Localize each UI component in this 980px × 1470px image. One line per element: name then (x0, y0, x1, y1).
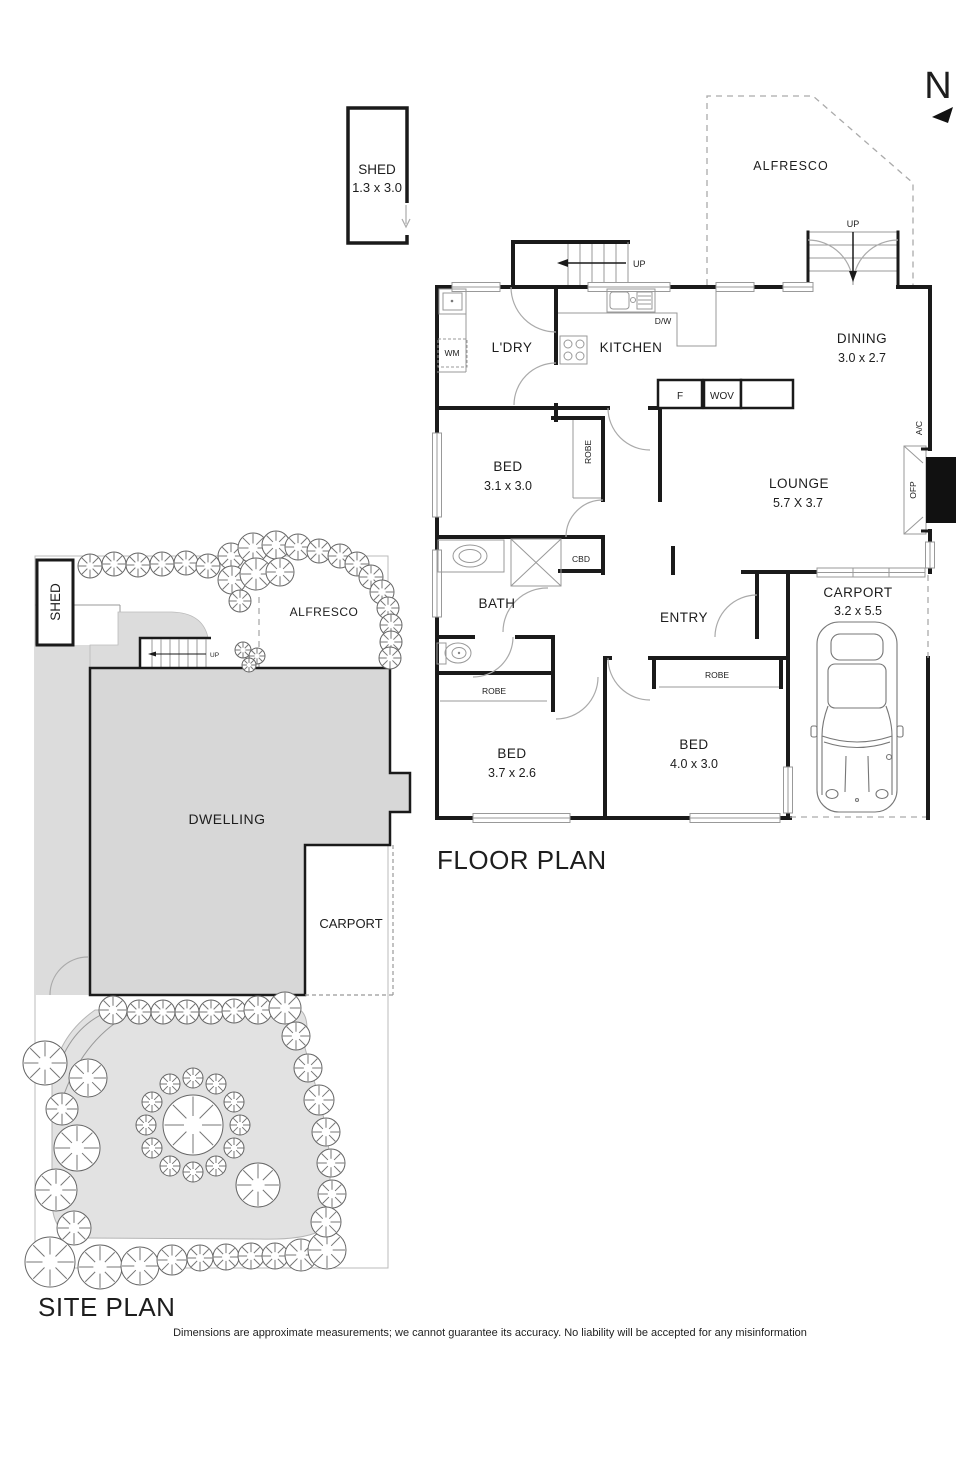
north-arrow-icon (932, 107, 953, 123)
room-label-lounge: LOUNGE (769, 476, 829, 491)
bench-box (741, 380, 793, 408)
shed-floorplan: SHED 1.3 x 3.0 (348, 108, 410, 243)
window-icon (588, 283, 670, 292)
tree-icon (222, 999, 246, 1023)
room-label-carport: CARPORT (823, 585, 892, 600)
tree-icon (23, 1041, 67, 1085)
room-label-bed3: BED (679, 737, 708, 752)
fridge-box: F (658, 380, 702, 408)
tree-icon (282, 1022, 310, 1050)
dwelling-label: DWELLING (188, 811, 265, 827)
tree-icon (238, 1243, 264, 1269)
tree-icon (35, 1169, 77, 1211)
robe-label: ROBE (482, 686, 506, 696)
north-compass: N (924, 65, 953, 123)
floor-plan-title: FLOOR PLAN (437, 845, 607, 875)
carport-siteplan: CARPORT (305, 845, 393, 995)
site-shed-label: SHED (48, 583, 63, 621)
vanity-basin-icon (438, 540, 504, 572)
window-icon (783, 283, 813, 292)
tree-icon (213, 1244, 239, 1270)
tree-icon (224, 1138, 244, 1158)
wall-oven-label: WOV (710, 391, 734, 402)
driveway-strip (35, 645, 90, 995)
window-icon (817, 568, 925, 577)
room-label-laundry: L'DRY (492, 340, 533, 355)
tree-icon (230, 1115, 250, 1135)
window-icon (433, 550, 442, 617)
room-label-bath: BATH (478, 596, 515, 611)
tree-icon (312, 1118, 340, 1146)
tree-icon (174, 551, 198, 575)
floor-plan: SHED 1.3 x 3.0 N ALFRESCO UP (348, 65, 956, 875)
tree-icon (224, 1092, 244, 1112)
robe-label: ROBE (583, 440, 593, 464)
room-dims-bed3: 4.0 x 3.0 (670, 757, 718, 771)
dwelling-block: DWELLING (90, 668, 410, 995)
plan-drawing: SHED 1.3 x 3.0 N ALFRESCO UP (0, 0, 980, 1470)
north-letter: N (924, 65, 951, 107)
tree-icon (69, 1059, 107, 1097)
site-stairs-up-label: UP (210, 652, 219, 659)
site-carport-label: CARPORT (319, 916, 382, 931)
site-plan: UP SHED ALFRESCO DWELLING CARPORT SITE P… (23, 531, 410, 1322)
stairs-up-label: UP (633, 259, 646, 269)
robe-label: ROBE (705, 670, 729, 680)
disclaimer-text: Dimensions are approximate measurements;… (173, 1327, 807, 1339)
alfresco-floorplan: ALFRESCO (707, 96, 913, 285)
tree-icon (157, 1245, 187, 1275)
dishwasher-label: D/W (655, 316, 672, 326)
tree-icon (151, 1000, 175, 1024)
tree-icon (102, 552, 126, 576)
room-label-dining: DINING (837, 331, 887, 346)
site-plan-title: SITE PLAN (38, 1292, 175, 1322)
plan-page: SHED 1.3 x 3.0 N ALFRESCO UP (0, 0, 980, 1470)
tree-icon (379, 647, 401, 669)
tree-icon (199, 1000, 223, 1024)
shed-siteplan: SHED (37, 560, 73, 645)
tree-icon (136, 1115, 156, 1135)
tree-icon (183, 1162, 203, 1182)
laundry-trough-icon (437, 289, 466, 372)
tree-icon (269, 992, 301, 1024)
tree-icon (262, 1243, 288, 1269)
robe-bed1: ROBE (573, 420, 601, 498)
fireplace-ofp: OFP (904, 446, 956, 534)
tree-icon (311, 1207, 341, 1237)
room-dims-bed1: 3.1 x 3.0 (484, 479, 532, 493)
stairs-floorplan: UP (513, 242, 646, 287)
tree-icon (121, 1247, 159, 1285)
tree-icon (206, 1156, 226, 1176)
tree-icon (160, 1074, 180, 1094)
tree-icon (99, 996, 127, 1024)
room-dims-bed2: 3.7 x 2.6 (488, 766, 536, 780)
wall-oven-box: WOV (704, 380, 741, 408)
tree-icon (294, 1054, 322, 1082)
tree-icon (285, 534, 311, 560)
room-label-bed2: BED (497, 746, 526, 761)
tree-icon (142, 1138, 162, 1158)
shed-dims: 1.3 x 3.0 (352, 180, 402, 195)
window-icon (784, 767, 793, 813)
kitchen-sink-icon (607, 289, 655, 312)
tree-icon (46, 1093, 78, 1125)
tree-icon (142, 1092, 162, 1112)
tree-icon (236, 1163, 280, 1207)
tree-icon (318, 1180, 346, 1208)
window-icon (473, 814, 570, 823)
window-icon (452, 283, 500, 292)
window-icon (690, 814, 780, 823)
wm-label: WM (444, 348, 459, 358)
tree-icon (307, 539, 331, 563)
room-dims-lounge: 5.7 X 3.7 (773, 496, 823, 510)
porch-entry: UP (808, 219, 898, 285)
tree-icon (150, 552, 174, 576)
tree-icon (196, 554, 220, 578)
shed-label: SHED (358, 162, 396, 177)
robe-bed2: ROBE (440, 686, 547, 701)
window-icon (716, 283, 754, 292)
shower-icon (511, 539, 561, 586)
tree-icon (242, 658, 256, 672)
tree-icon (187, 1245, 213, 1271)
tree-icon (54, 1125, 100, 1171)
tree-icon (126, 553, 150, 577)
alfresco-label: ALFRESCO (753, 159, 828, 173)
cupboard-label: CBD (572, 554, 590, 564)
room-dims-carport: 3.2 x 5.5 (834, 604, 882, 618)
toilet-icon (437, 643, 471, 664)
room-dims-dining: 3.0 x 2.7 (838, 351, 886, 365)
site-alfresco-label: ALFRESCO (290, 605, 359, 619)
stove-icon (560, 336, 587, 364)
robe-bed3: ROBE (654, 658, 781, 687)
tree-icon (78, 1245, 122, 1289)
window-icon (926, 542, 935, 568)
tree-icon (244, 996, 272, 1024)
tree-icon (317, 1149, 345, 1177)
window-icon (433, 433, 442, 517)
tree-icon (175, 1000, 199, 1024)
room-label-entry: ENTRY (660, 610, 708, 625)
tree-icon (229, 590, 251, 612)
tree-icon (78, 554, 102, 578)
tree-icon (25, 1237, 75, 1287)
fridge-label: F (677, 391, 683, 402)
tree-icon (206, 1074, 226, 1094)
tree-icon (304, 1085, 334, 1115)
stairs-siteplan: UP (140, 638, 219, 668)
tree-icon (127, 1000, 151, 1024)
tree-icon (183, 1068, 203, 1088)
car-icon (811, 622, 903, 812)
tree-icon (163, 1095, 223, 1155)
ofp-label: OFP (908, 481, 918, 499)
porch-up-label: UP (847, 219, 860, 229)
room-label-bed1: BED (493, 459, 522, 474)
tree-icon (266, 558, 294, 586)
room-label-kitchen: KITCHEN (600, 340, 663, 355)
ac-label: A/C (914, 421, 924, 435)
washing-machine-icon: WM (438, 339, 467, 367)
tree-icon (160, 1156, 180, 1176)
